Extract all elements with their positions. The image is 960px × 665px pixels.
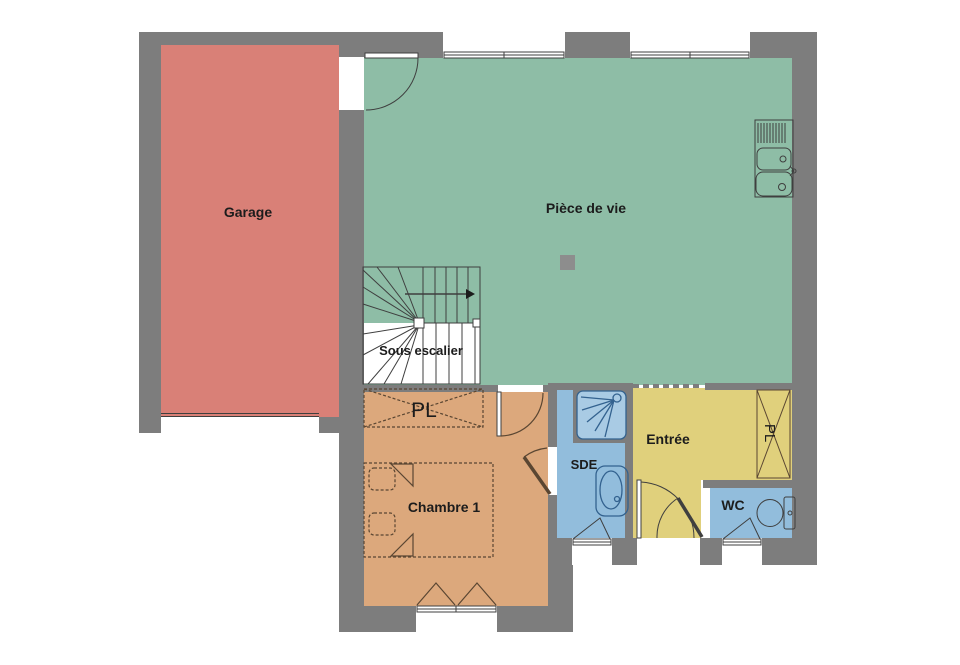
label-shower-room: SDE: [571, 457, 598, 472]
opening-garage-door: [161, 417, 319, 433]
opening-bedroom-door: [498, 385, 543, 392]
wall-wc-top: [703, 480, 792, 488]
opening-shower-door: [548, 447, 557, 495]
label-closet-bedroom: PL: [411, 399, 437, 422]
floor-plan-page: Garage Pièce de vie Sous escalier PL Cha…: [0, 0, 960, 665]
label-under-stairs: Sous escalier: [379, 343, 463, 358]
opening-garage-living-door: [339, 57, 364, 110]
stair-newel-post: [414, 318, 424, 328]
label-entrance: Entrée: [646, 431, 690, 447]
label-garage: Garage: [224, 204, 272, 220]
stair-edge-post: [473, 319, 480, 327]
room-wc: [710, 488, 792, 538]
label-wc: WC: [721, 497, 744, 513]
wall-left: [139, 45, 161, 417]
wall-entrance-top: [705, 383, 792, 390]
label-living: Pièce de vie: [546, 200, 626, 216]
window-shower: [573, 539, 611, 545]
window-living-1: [444, 52, 564, 58]
window-wc: [723, 539, 761, 545]
room-garage: [160, 45, 339, 417]
structural-post: [560, 255, 575, 270]
wall-top-garage: [139, 32, 344, 45]
floor-plan-drawing: Garage Pièce de vie Sous escalier PL Cha…: [0, 0, 960, 665]
shower-tray: [573, 387, 630, 443]
label-closet-entrance: PL: [761, 424, 778, 442]
wall-right: [792, 32, 817, 565]
opening-entry-door: [637, 538, 700, 565]
window-living-2: [631, 52, 749, 58]
label-bedroom: Chambre 1: [408, 499, 481, 515]
wall-west-column: [339, 45, 364, 632]
window-bedroom: [417, 606, 496, 612]
opening-wc-door: [701, 488, 710, 538]
